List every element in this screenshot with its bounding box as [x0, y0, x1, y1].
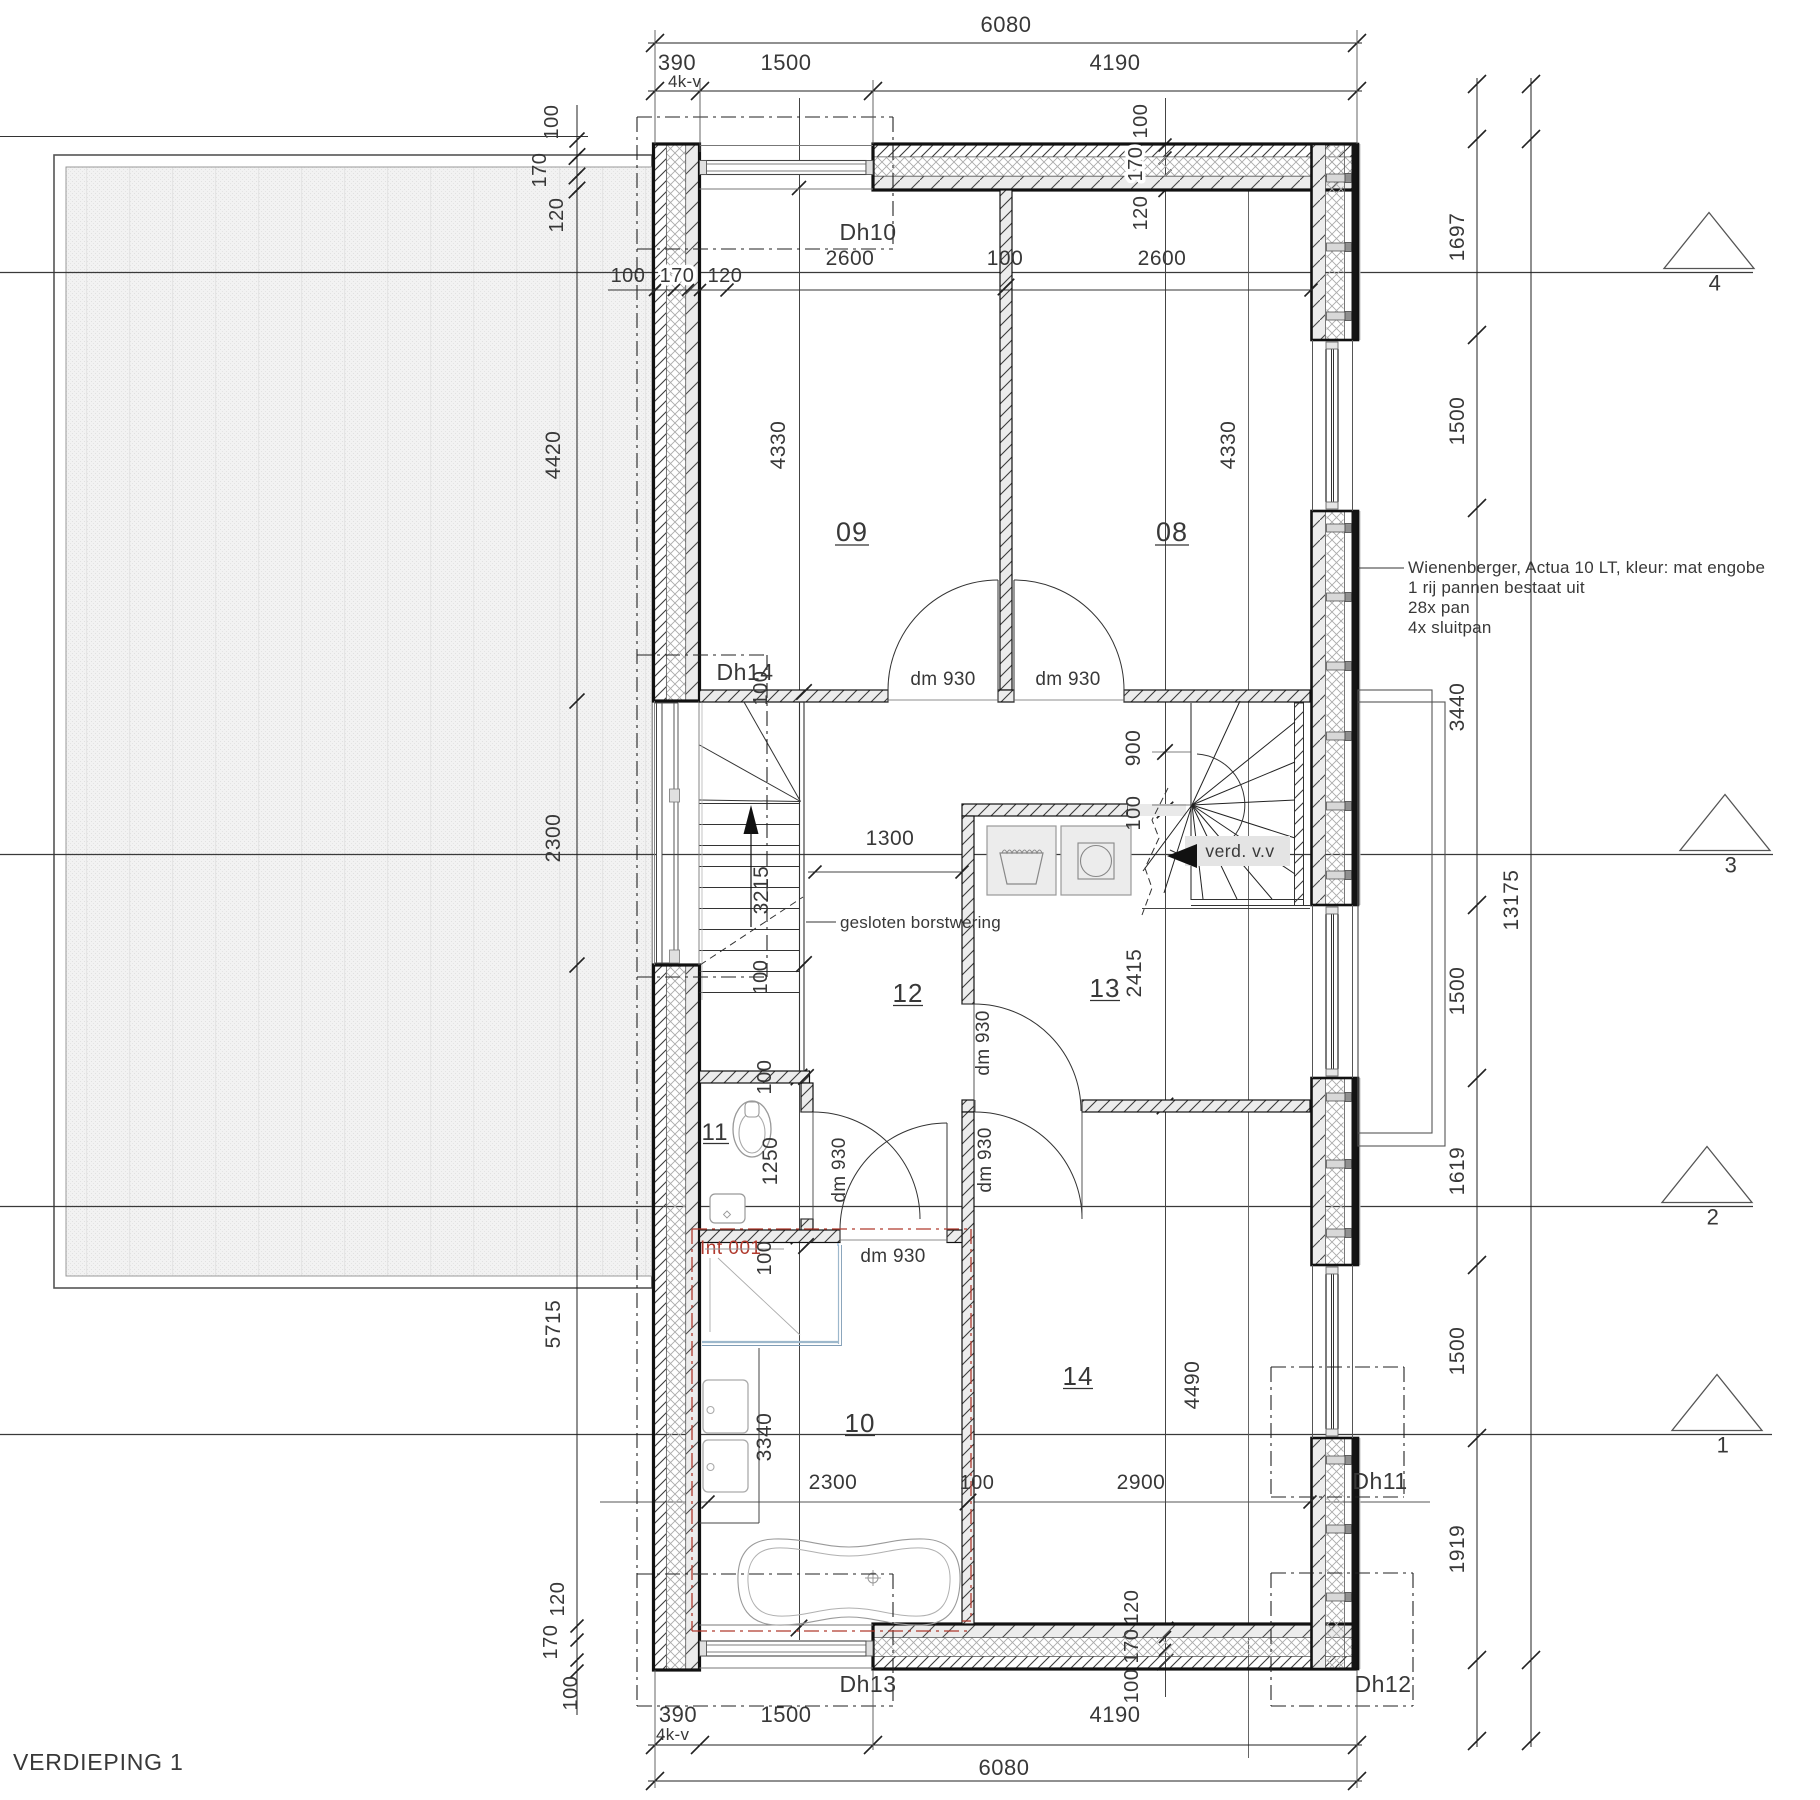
svg-text:100: 100	[987, 247, 1024, 270]
svg-text:09: 09	[836, 517, 868, 547]
svg-text:2: 2	[1707, 1205, 1720, 1230]
svg-text:Dh13: Dh13	[840, 1671, 897, 1697]
svg-text:100: 100	[754, 1241, 776, 1276]
svg-text:dm 930: dm 930	[860, 1246, 925, 1267]
svg-text:170: 170	[529, 153, 551, 188]
svg-text:13: 13	[1090, 973, 1121, 1003]
svg-text:4k-v: 4k-v	[656, 1725, 690, 1744]
svg-text:4190: 4190	[1090, 1702, 1141, 1727]
svg-text:4330: 4330	[767, 421, 790, 470]
svg-text:1500: 1500	[761, 1702, 812, 1727]
svg-text:verd. v.v: verd. v.v	[1205, 841, 1274, 861]
svg-text:4k-v: 4k-v	[668, 72, 702, 91]
svg-text:100: 100	[750, 960, 772, 995]
svg-text:100: 100	[750, 671, 772, 706]
svg-text:120: 120	[1121, 1590, 1143, 1625]
svg-text:gesloten borstwering: gesloten borstwering	[840, 913, 1001, 932]
svg-text:1697: 1697	[1446, 213, 1469, 262]
svg-text:28x pan: 28x pan	[1408, 598, 1470, 617]
svg-text:120: 120	[708, 265, 743, 287]
svg-text:1: 1	[1717, 1433, 1730, 1458]
svg-text:2300: 2300	[542, 814, 565, 863]
svg-text:Wienenberger, Actua 10 LT, kle: Wienenberger, Actua 10 LT, kleur: mat en…	[1408, 558, 1765, 577]
svg-text:2415: 2415	[1123, 949, 1146, 998]
svg-text:390: 390	[659, 1702, 697, 1727]
svg-text:3440: 3440	[1446, 683, 1469, 732]
svg-text:120: 120	[546, 198, 568, 233]
svg-text:170: 170	[1121, 1629, 1143, 1664]
svg-text:Dh12: Dh12	[1355, 1671, 1412, 1697]
svg-text:dm 930: dm 930	[910, 669, 975, 690]
svg-text:6080: 6080	[981, 12, 1032, 37]
svg-text:08: 08	[1156, 517, 1188, 547]
svg-text:1250: 1250	[759, 1137, 782, 1186]
svg-text:1 rij pannen bestaat uit: 1 rij pannen bestaat uit	[1408, 578, 1585, 597]
svg-text:3: 3	[1725, 853, 1738, 878]
svg-text:900: 900	[1122, 730, 1145, 767]
svg-text:VERDIEPING 1: VERDIEPING 1	[13, 1749, 184, 1775]
svg-text:dm 930: dm 930	[1035, 669, 1100, 690]
svg-text:1500: 1500	[761, 50, 812, 75]
svg-text:120: 120	[547, 1582, 569, 1617]
svg-text:3215: 3215	[750, 866, 773, 915]
svg-text:1500: 1500	[1446, 967, 1469, 1016]
svg-text:100: 100	[541, 105, 563, 140]
svg-text:170: 170	[540, 1625, 562, 1660]
svg-text:170: 170	[660, 265, 695, 287]
svg-text:2600: 2600	[826, 247, 875, 270]
svg-text:dm 930: dm 930	[973, 1010, 994, 1075]
svg-text:4: 4	[1709, 271, 1722, 296]
svg-text:120: 120	[1130, 196, 1152, 231]
svg-text:1919: 1919	[1446, 1525, 1469, 1574]
svg-text:100: 100	[611, 265, 646, 287]
svg-text:13175: 13175	[1500, 870, 1523, 931]
svg-text:2300: 2300	[809, 1471, 858, 1494]
svg-text:2900: 2900	[1117, 1471, 1166, 1494]
svg-text:100: 100	[1130, 104, 1152, 139]
svg-text:1500: 1500	[1446, 1327, 1469, 1376]
svg-text:11: 11	[702, 1119, 729, 1146]
svg-text:100: 100	[960, 1472, 995, 1494]
svg-text:1300: 1300	[866, 827, 915, 850]
svg-text:4490: 4490	[1181, 1361, 1204, 1410]
svg-text:3340: 3340	[753, 1413, 776, 1462]
svg-text:4x sluitpan: 4x sluitpan	[1408, 618, 1491, 637]
svg-text:100: 100	[560, 1676, 582, 1711]
svg-text:2600: 2600	[1138, 247, 1187, 270]
svg-text:dm 930: dm 930	[975, 1127, 996, 1192]
svg-text:Dh10: Dh10	[840, 219, 897, 245]
svg-text:4190: 4190	[1090, 50, 1141, 75]
svg-text:dm 930: dm 930	[829, 1137, 850, 1202]
svg-text:1500: 1500	[1446, 397, 1469, 446]
svg-text:14: 14	[1063, 1361, 1094, 1391]
svg-text:10: 10	[845, 1408, 876, 1438]
svg-text:6080: 6080	[979, 1755, 1030, 1780]
svg-text:Int 001: Int 001	[700, 1238, 762, 1259]
svg-text:1619: 1619	[1446, 1147, 1469, 1196]
svg-text:4330: 4330	[1217, 421, 1240, 470]
svg-text:4420: 4420	[542, 431, 565, 480]
svg-text:100: 100	[1123, 796, 1145, 831]
svg-text:100: 100	[754, 1060, 776, 1095]
svg-text:170: 170	[1125, 147, 1147, 182]
svg-text:12: 12	[893, 978, 924, 1008]
svg-text:Dh11: Dh11	[1352, 1468, 1407, 1494]
svg-text:100: 100	[1121, 1669, 1143, 1704]
svg-text:5715: 5715	[542, 1300, 565, 1349]
